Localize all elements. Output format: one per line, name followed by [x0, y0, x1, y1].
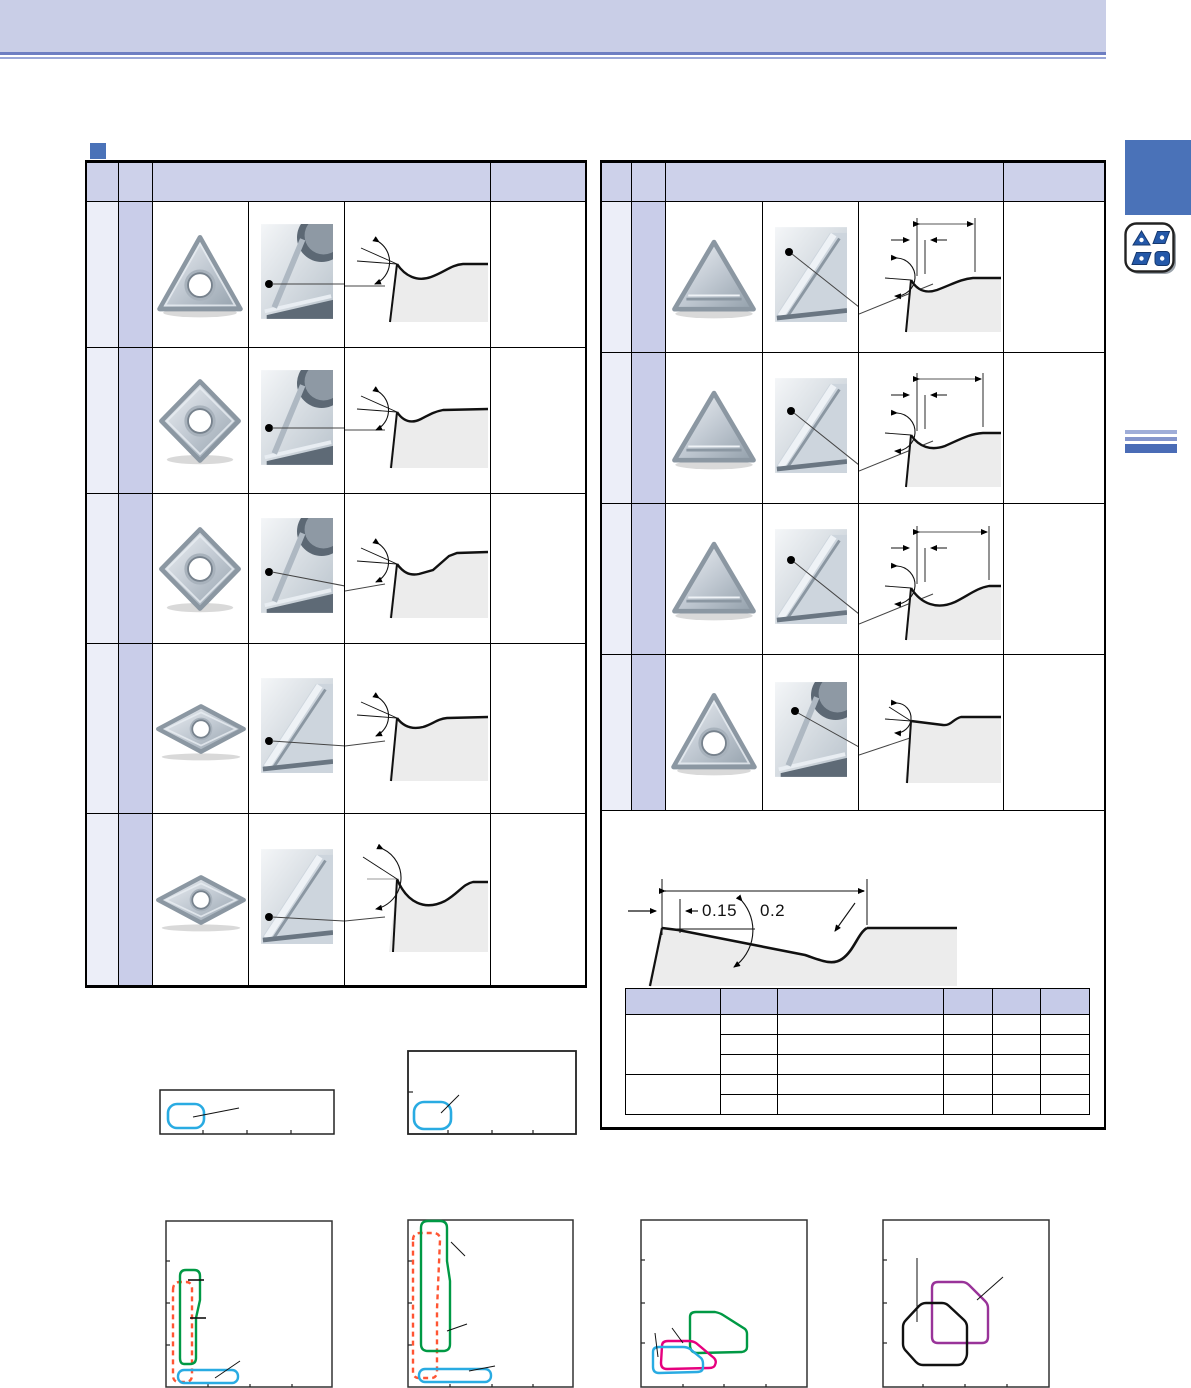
chapter-tab[interactable] [1125, 140, 1191, 215]
dimension-max-label: 0.2 [760, 901, 785, 921]
triangle-flat-insert-icon [668, 382, 760, 474]
spec-header-row [626, 989, 1090, 1015]
corner-closeup-icon [763, 202, 859, 352]
edge-cross-section-flat-icon [859, 655, 1004, 810]
corner-closeup-icon [763, 353, 859, 503]
spec-row [626, 1015, 1090, 1035]
triangle-insert-with-hole-icon [154, 229, 246, 321]
application-range-chart-small-1 [159, 1089, 335, 1135]
table-row [86, 348, 586, 494]
application-range-chart-small-2 [407, 1050, 577, 1135]
range-region-blue [414, 1102, 451, 1129]
edge-cross-section-icon [345, 817, 491, 982]
edge-cross-section-dimensioned-icon [859, 504, 1004, 654]
corner-closeup-icon [249, 817, 345, 982]
application-map-chart-3 [640, 1219, 808, 1388]
range-region-red-dashed [173, 1282, 192, 1382]
spec-table [625, 988, 1090, 1115]
range-region-blue [419, 1369, 491, 1382]
spec-row [626, 1075, 1090, 1095]
section-marker [90, 143, 106, 159]
range-region-purple [932, 1282, 988, 1343]
page-header-banner [0, 0, 1106, 52]
right-table-header-row [601, 162, 1105, 202]
corner-closeup-icon [249, 646, 345, 811]
diamond-insert-with-hole-icon [154, 375, 246, 467]
corner-closeup-icon [763, 655, 859, 810]
table-row [601, 655, 1105, 811]
table-row [601, 202, 1105, 353]
chipbreaker-profile-diagram: 0.15 0.2 [620, 861, 970, 989]
range-region-green [690, 1312, 747, 1353]
application-map-chart-1 [165, 1220, 333, 1388]
edge-cross-section-icon [345, 496, 491, 641]
edge-cross-section-icon [345, 202, 491, 347]
table-row [86, 202, 586, 348]
table-row [86, 644, 586, 814]
triangle-flat-insert-icon [668, 533, 760, 625]
corner-closeup-icon [249, 496, 345, 641]
sidebar-stripe-medium [1125, 437, 1177, 441]
edge-cross-section-icon [345, 646, 491, 811]
banner-underline-light [0, 57, 1106, 59]
table-row [86, 494, 586, 644]
table-row [601, 353, 1105, 504]
corner-closeup-icon [249, 202, 345, 347]
right-insert-table: 0.15 0.2 [600, 160, 1106, 1130]
sidebar-stripe-light [1125, 430, 1177, 434]
diamond-55-insert-with-hole-icon [153, 694, 249, 764]
range-region-red-dashed [413, 1233, 440, 1378]
triangle-insert-with-hole-icon [668, 687, 760, 779]
application-map-chart-2 [407, 1219, 574, 1388]
left-table-header-row [86, 162, 586, 202]
callout-dot [265, 280, 273, 288]
edge-cross-section-dimensioned-icon [859, 202, 1004, 352]
corner-closeup-icon [249, 348, 345, 493]
table-row [86, 814, 586, 987]
range-region-green [421, 1221, 450, 1351]
sidebar-stripe-dark [1125, 444, 1177, 453]
edge-cross-section-icon [345, 348, 491, 493]
table-row-footer: 0.15 0.2 [601, 811, 1105, 1129]
range-region-magenta [661, 1341, 716, 1369]
application-map-chart-4 [882, 1219, 1050, 1388]
corner-closeup-icon [763, 504, 859, 654]
catalog-page: 0.15 0.2 [0, 0, 1191, 1388]
table-row [601, 504, 1105, 655]
range-region-black [903, 1303, 967, 1365]
insert-shapes-icon[interactable] [1124, 222, 1177, 275]
diamond-insert-with-hole-icon [154, 523, 246, 615]
left-insert-table [85, 160, 587, 988]
edge-cross-section-dimensioned-icon [859, 353, 1004, 503]
diamond-55-insert-with-hole-icon [153, 865, 249, 935]
triangle-flat-insert-icon [668, 231, 760, 323]
dimension-min-label: 0.15 [702, 901, 737, 921]
banner-underline-dark [0, 52, 1106, 55]
range-region-blue [178, 1370, 238, 1383]
